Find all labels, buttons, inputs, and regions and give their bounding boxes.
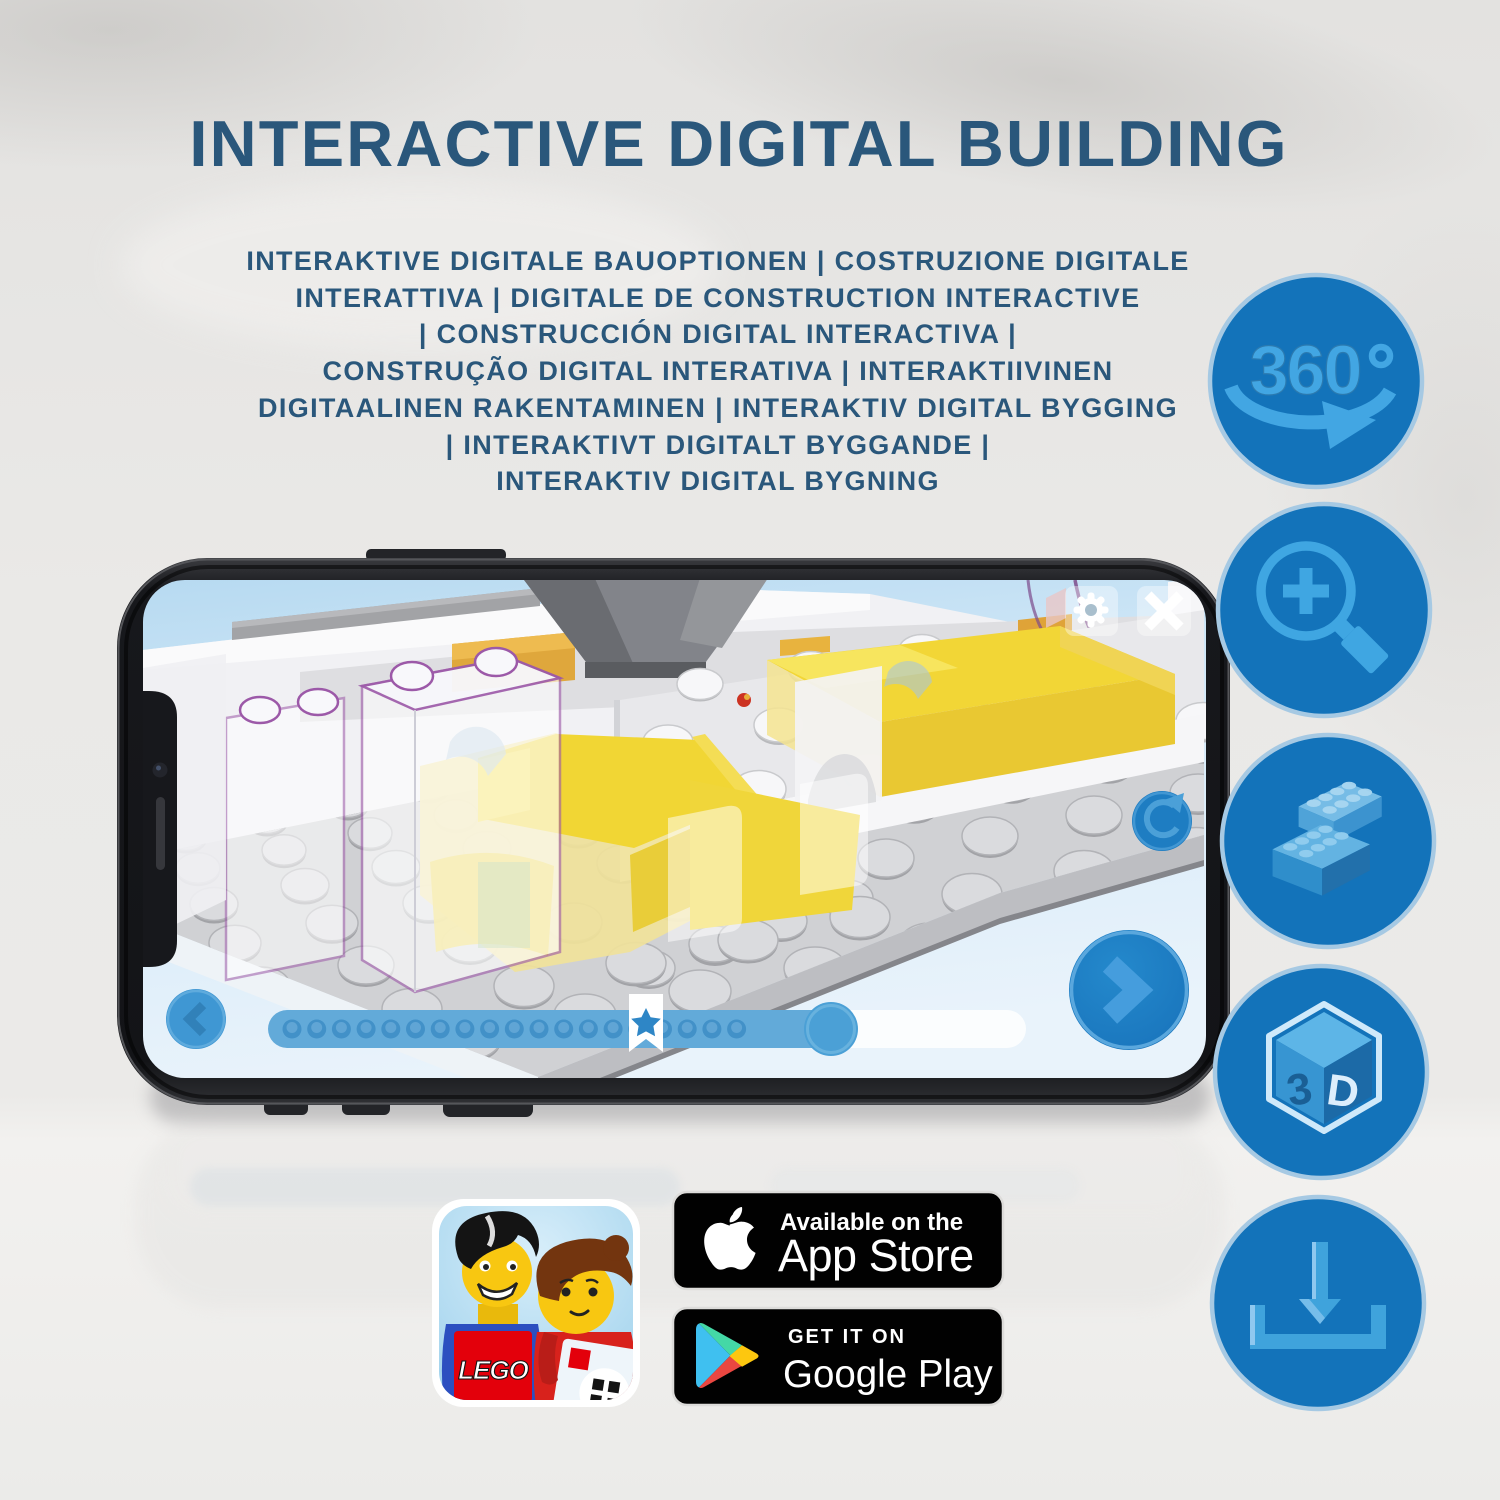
svg-text:GET IT ON: GET IT ON xyxy=(788,1326,906,1348)
svg-text:| INTERAKTIVT DIGITALT BYGGAND: | INTERAKTIVT DIGITALT BYGGANDE | xyxy=(446,430,991,460)
svg-text:App Store: App Store xyxy=(778,1230,974,1281)
svg-text:| CONSTRUCCIÓN DIGITAL INTERAC: | CONSTRUCCIÓN DIGITAL INTERACTIVA | xyxy=(419,318,1017,349)
svg-text:INTERAKTIVE DIGITALE BAUOPTION: INTERAKTIVE DIGITALE BAUOPTIONEN | COSTR… xyxy=(246,246,1189,276)
svg-text:D: D xyxy=(1324,1065,1362,1118)
svg-text:LEGO: LEGO xyxy=(458,1355,528,1385)
svg-text:360: 360 xyxy=(1250,331,1361,409)
svg-text:INTERAKTIV DIGITAL BYGNING: INTERAKTIV DIGITAL BYGNING xyxy=(496,466,940,496)
svg-text:INTERACTIVE DIGITAL BUILDING: INTERACTIVE DIGITAL BUILDING xyxy=(189,107,1288,180)
svg-text:Google Play: Google Play xyxy=(783,1353,993,1396)
svg-text:INTERATTIVA | DIGITALE DE CONS: INTERATTIVA | DIGITALE DE CONSTRUCTION I… xyxy=(295,283,1140,313)
svg-text:DIGITAALINEN RAKENTAMINEN | IN: DIGITAALINEN RAKENTAMINEN | INTERAKTIV D… xyxy=(258,393,1178,423)
svg-text:CONSTRUÇÃO DIGITAL INTERATIVA: CONSTRUÇÃO DIGITAL INTERATIVA | INTERAKT… xyxy=(323,355,1114,386)
